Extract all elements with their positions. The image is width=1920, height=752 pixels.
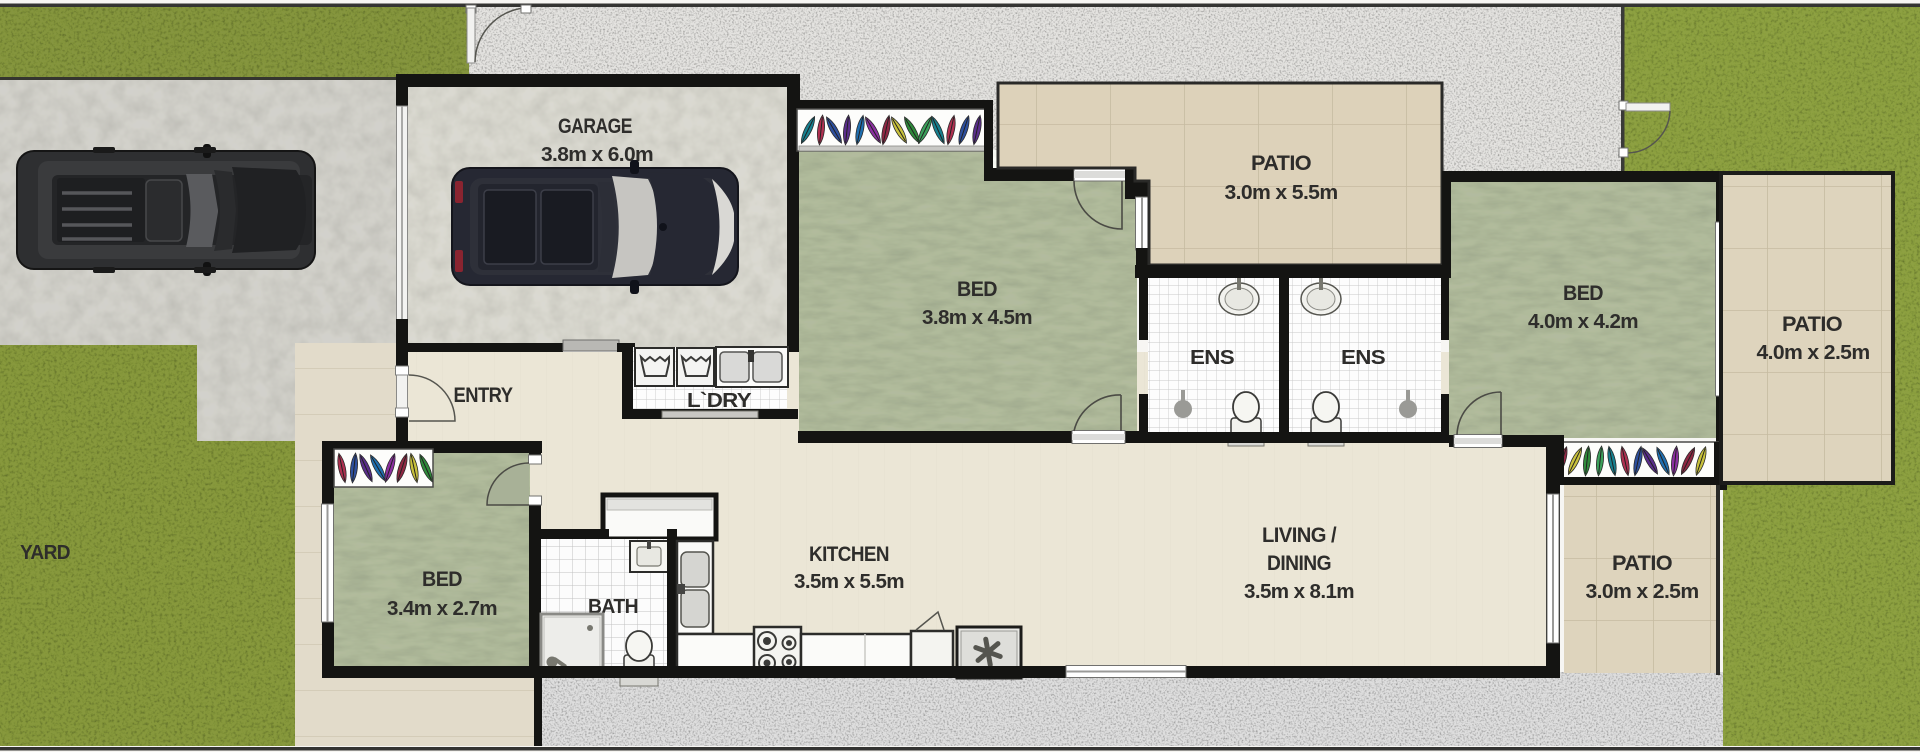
svg-text:3.8m x 4.5m: 3.8m x 4.5m — [922, 307, 1032, 329]
svg-text:3.0m x 5.5m: 3.0m x 5.5m — [1225, 182, 1338, 204]
svg-text:4.0m x 2.5m: 4.0m x 2.5m — [1757, 342, 1870, 364]
svg-text:3.5m x 5.5m: 3.5m x 5.5m — [794, 571, 904, 593]
svg-text:3.4m x 2.7m: 3.4m x 2.7m — [387, 598, 497, 620]
svg-text:BED: BED — [422, 568, 462, 591]
svg-text:DINING: DINING — [1267, 552, 1331, 575]
svg-text:KITCHEN: KITCHEN — [809, 543, 889, 566]
svg-text:ENS: ENS — [1341, 347, 1385, 369]
svg-text:BED: BED — [957, 278, 997, 301]
svg-text:ENS: ENS — [1190, 347, 1234, 369]
svg-text:YARD: YARD — [20, 542, 70, 564]
svg-text:L`DRY: L`DRY — [687, 390, 752, 412]
svg-text:GARAGE: GARAGE — [558, 115, 632, 138]
svg-text:LIVING /: LIVING / — [1262, 524, 1337, 547]
svg-text:PATIO: PATIO — [1251, 152, 1311, 175]
svg-text:3.0m x 2.5m: 3.0m x 2.5m — [1586, 581, 1699, 603]
svg-text:PATIO: PATIO — [1782, 313, 1842, 336]
svg-text:BED: BED — [1563, 282, 1603, 305]
svg-text:ENTRY: ENTRY — [454, 384, 514, 407]
svg-text:PATIO: PATIO — [1612, 552, 1672, 575]
svg-text:3.5m x 8.1m: 3.5m x 8.1m — [1244, 581, 1354, 603]
svg-text:4.0m x 4.2m: 4.0m x 4.2m — [1528, 311, 1638, 333]
